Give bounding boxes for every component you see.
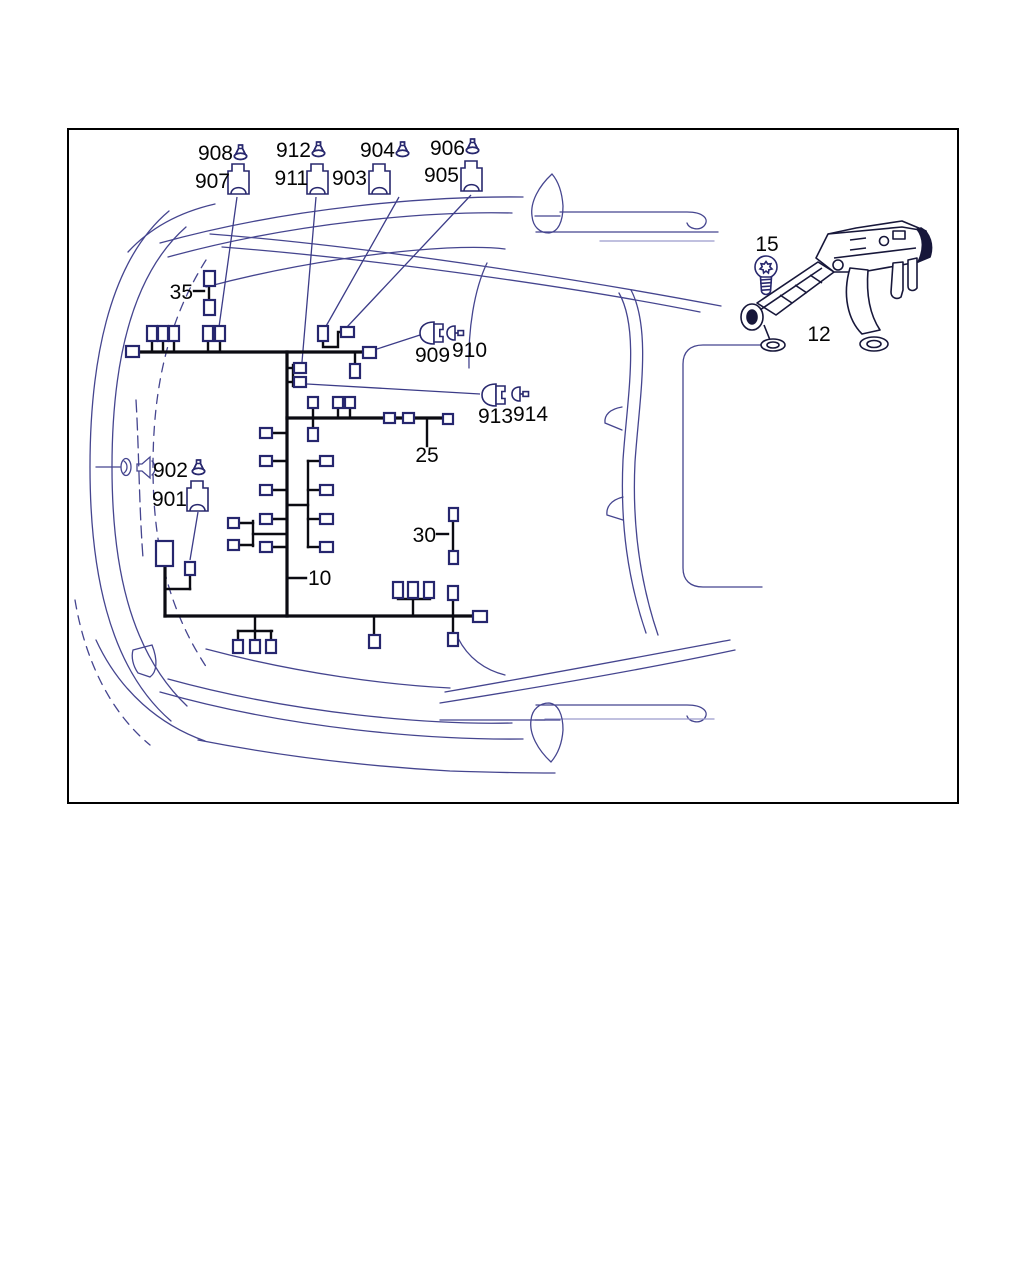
harness-connector [250, 640, 260, 653]
harness-connector [233, 640, 243, 653]
harness-connector [320, 514, 333, 524]
harness-connector [260, 428, 272, 438]
part-label-25: 25 [415, 444, 438, 467]
part-label-10: 10 [308, 567, 331, 590]
bulb-icon-904 [396, 142, 408, 156]
harness-connector [345, 397, 355, 408]
part-label-902: 902 [153, 459, 188, 482]
connector-housing-icon-907 [228, 164, 249, 194]
harness-connector [403, 413, 414, 423]
part-label-909: 909 [415, 344, 450, 367]
harness-connector [204, 300, 215, 315]
harness-connector [260, 456, 272, 466]
torx-screw-icon-15 [755, 256, 777, 295]
leader-line [377, 335, 420, 349]
leader-line [325, 197, 399, 328]
harness-connector [158, 326, 168, 341]
harness-connector [350, 364, 360, 378]
part-label-35: 35 [170, 281, 193, 304]
part-label-911: 911 [275, 167, 308, 190]
part-label-906: 906 [430, 137, 465, 160]
harness-connector [449, 508, 458, 521]
harness-connector [448, 633, 458, 646]
part-label-904: 904 [360, 139, 395, 162]
connector-housing-icon-905 [461, 161, 482, 191]
harness-connector [147, 326, 157, 341]
part-label-913: 913 [478, 405, 513, 428]
harness-connector [363, 347, 376, 358]
part-label-912: 912 [276, 139, 311, 162]
harness-connector [308, 397, 318, 408]
part-label-908: 908 [198, 142, 233, 165]
plug-icon-910 [447, 326, 464, 340]
harness-connector [294, 377, 306, 387]
harness-connector [203, 326, 213, 341]
harness-connector [156, 541, 173, 566]
harness-connector [294, 363, 306, 373]
part-label-15: 15 [755, 233, 778, 256]
harness-connector [126, 346, 139, 357]
socket-icon-909 [420, 322, 443, 344]
leader-line [219, 197, 237, 327]
harness-connector [369, 635, 380, 648]
harness-connector [320, 456, 333, 466]
harness-connector [449, 551, 458, 564]
harness-connector [204, 271, 215, 286]
harness-connector [473, 611, 487, 622]
part-label-903: 903 [332, 167, 367, 190]
wiring-harness-diagram: 9089079129119049039069053590991091391425… [0, 0, 1024, 1280]
harness-connector [308, 428, 318, 441]
harness-connector [260, 542, 272, 552]
connector-housing-icon-911 [307, 164, 328, 194]
harness-connector [448, 586, 458, 600]
part-label-905: 905 [424, 164, 459, 187]
harness-connector [228, 518, 239, 528]
harness-connector [393, 582, 403, 598]
part-label-901: 901 [152, 488, 187, 511]
harness-connector [424, 582, 434, 598]
harness-connector [169, 326, 179, 341]
harness-connector [320, 542, 333, 552]
part-label-907: 907 [195, 170, 230, 193]
harness-connector [333, 397, 343, 408]
harness-connector [408, 582, 418, 598]
harness-connector [443, 414, 453, 424]
bulb-icon-902 [192, 460, 204, 474]
harness-connector [185, 562, 195, 575]
part-label-914: 914 [513, 403, 548, 426]
leader-line [302, 197, 316, 362]
harness-connector [320, 485, 333, 495]
harness-connector [260, 485, 272, 495]
connector-housing-icon-901 [187, 481, 208, 511]
bulb-icon-906 [466, 139, 478, 153]
harness-connector [266, 640, 276, 653]
harness-connector [318, 326, 328, 341]
bulb-icon-908 [234, 145, 246, 159]
leader-line [307, 384, 480, 394]
plug-icon-914 [512, 387, 529, 401]
bulb-icon-912 [312, 142, 324, 156]
harness-connector [384, 413, 395, 423]
part-label-12: 12 [807, 323, 830, 346]
connector-housing-icon-903 [369, 164, 390, 194]
socket-icon-913 [482, 384, 505, 406]
leader-line [190, 512, 198, 560]
part-label-910: 910 [452, 339, 487, 362]
harness-connector [215, 326, 225, 341]
harness-connector [228, 540, 239, 550]
harness-connector [341, 327, 354, 337]
part-label-30: 30 [413, 524, 436, 547]
harness-connector [260, 514, 272, 524]
